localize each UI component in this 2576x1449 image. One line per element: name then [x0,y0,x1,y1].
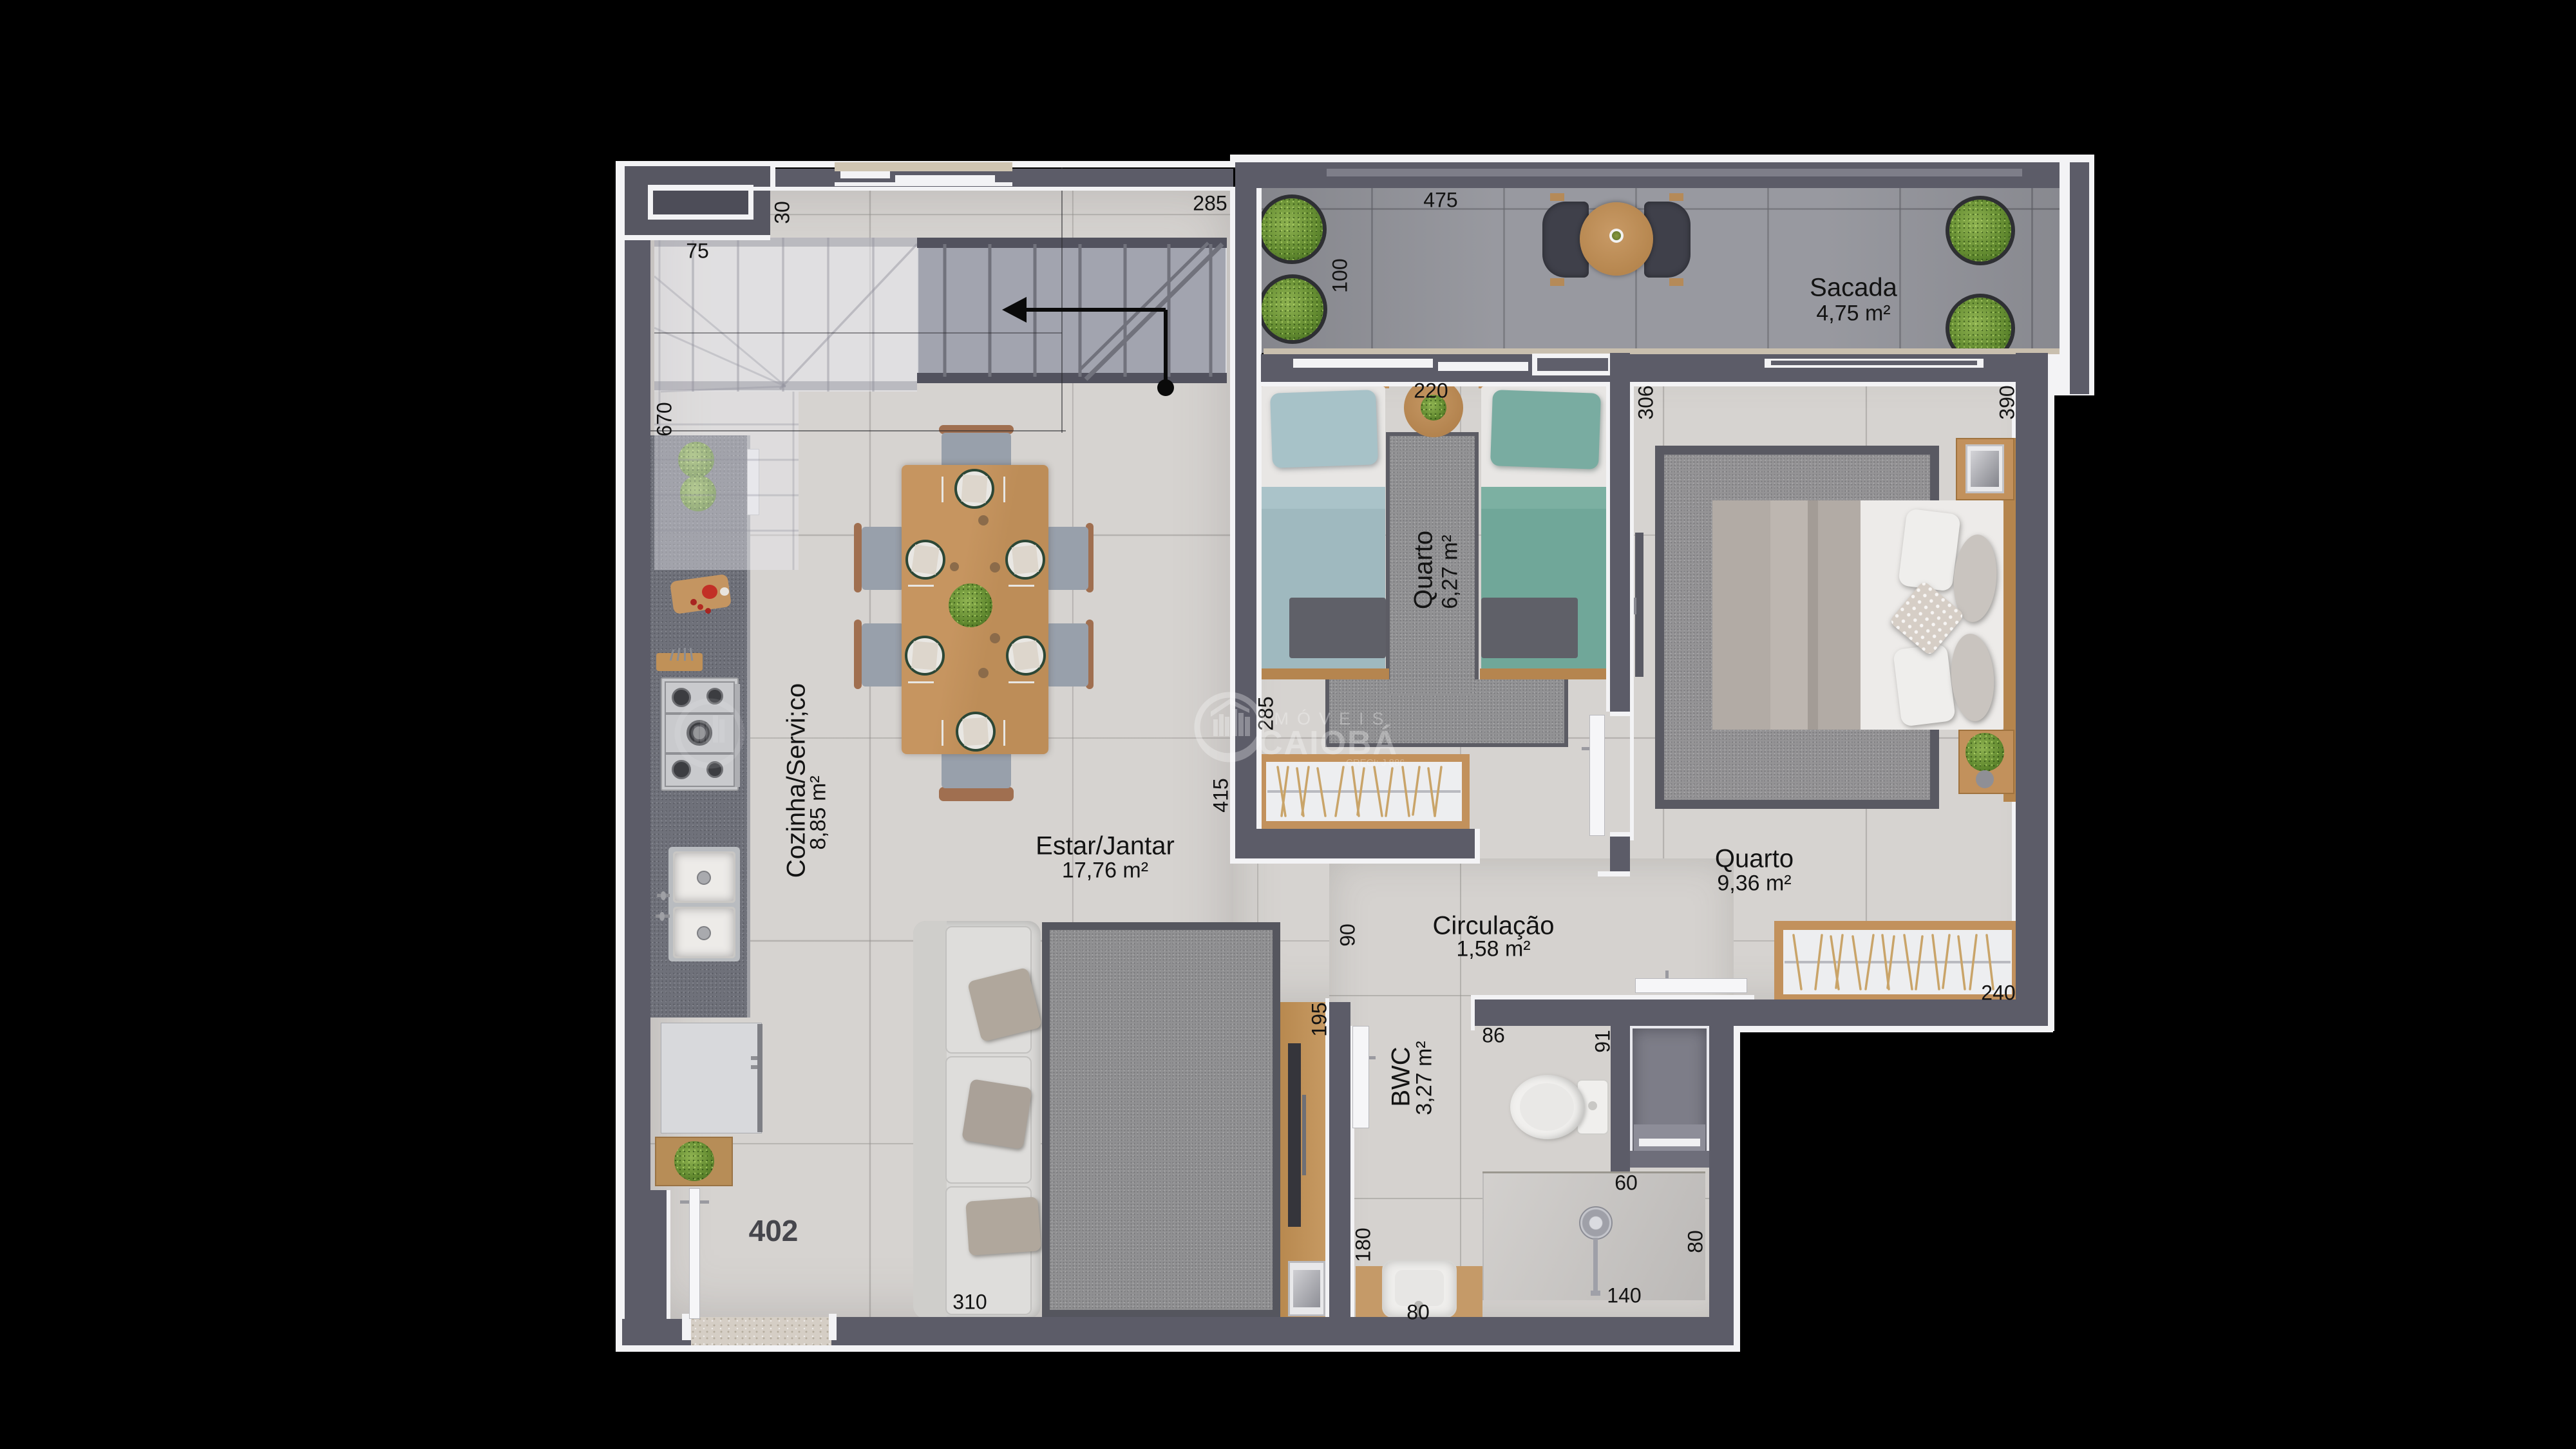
svg-text:CRECI: J 8806: CRECI: J 8806 [1346,757,1404,768]
svg-text:CAIOBÁ: CAIOBÁ [1258,724,1398,762]
